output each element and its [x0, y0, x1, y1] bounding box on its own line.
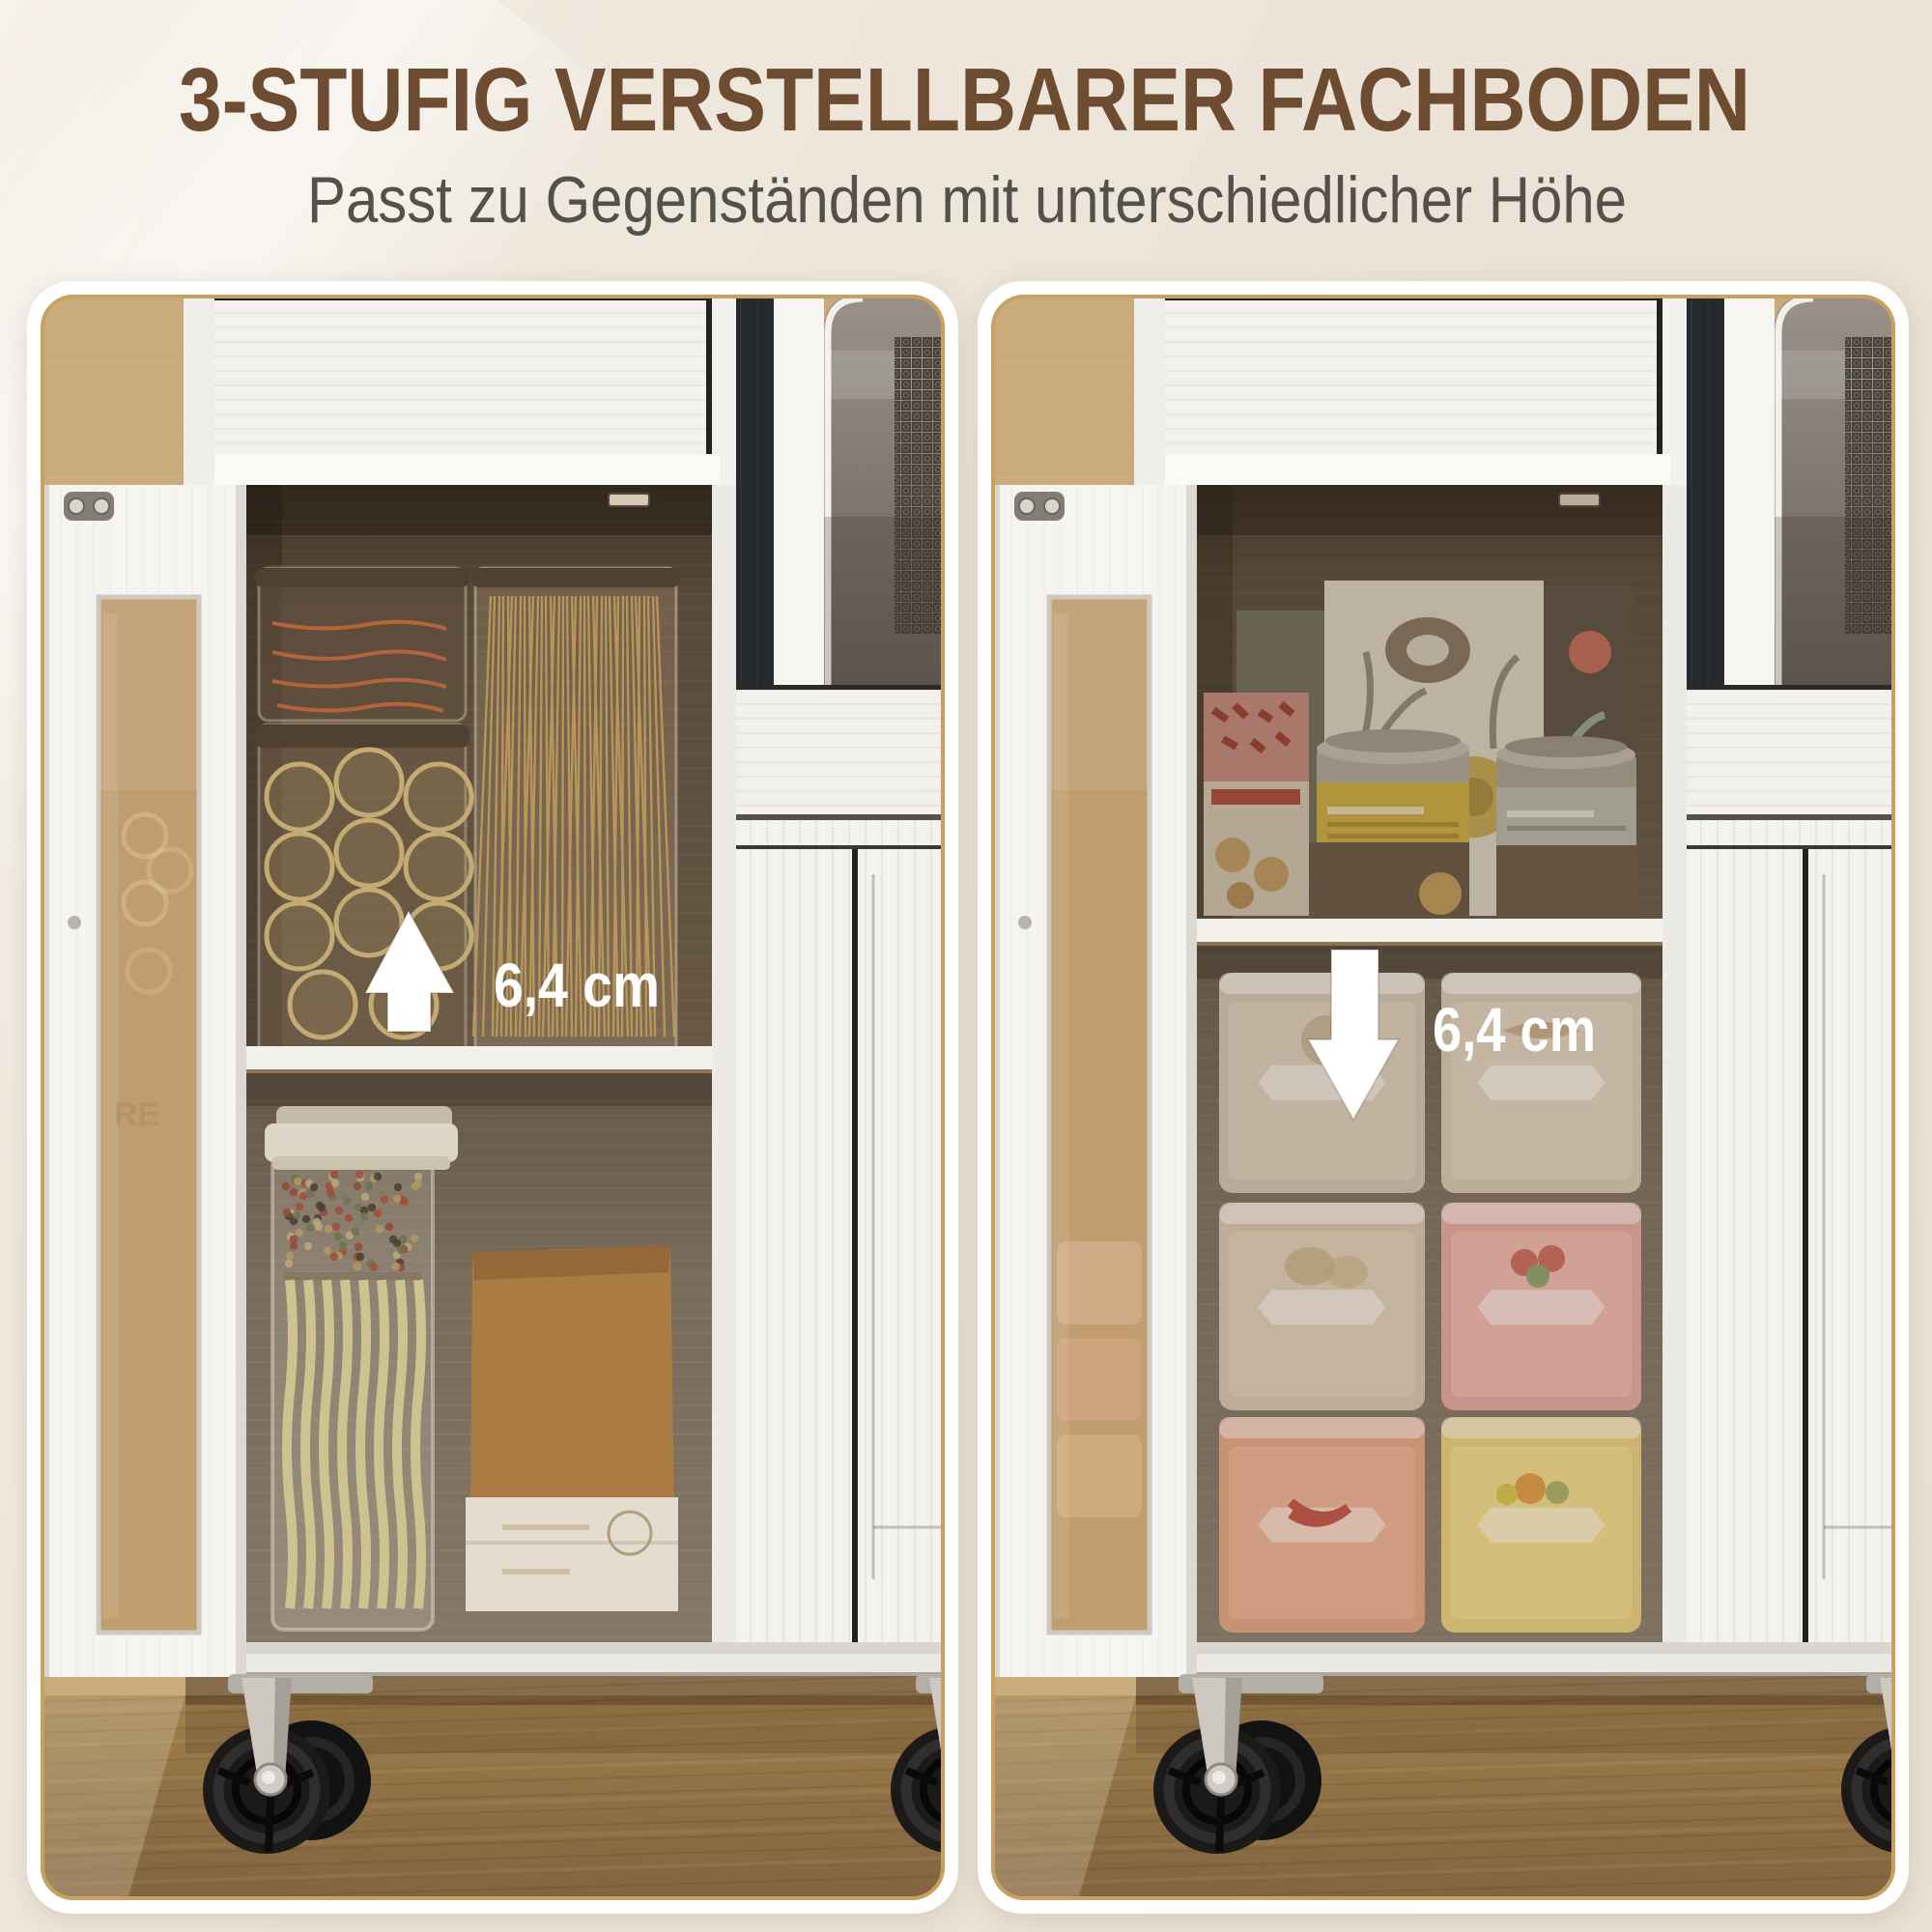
- svg-text:3-STUFIG VERSTELLBARER FACHBOD: 3-STUFIG VERSTELLBARER FACHBODEN: [179, 49, 1750, 150]
- svg-text:Passt zu Gegenständen mit unte: Passt zu Gegenständen mit unterschiedlic…: [307, 163, 1627, 237]
- svg-text:6,4 cm: 6,4 cm: [1433, 995, 1596, 1065]
- svg-text:6,4 cm: 6,4 cm: [494, 951, 660, 1020]
- svg-text:RE: RE: [114, 1096, 159, 1133]
